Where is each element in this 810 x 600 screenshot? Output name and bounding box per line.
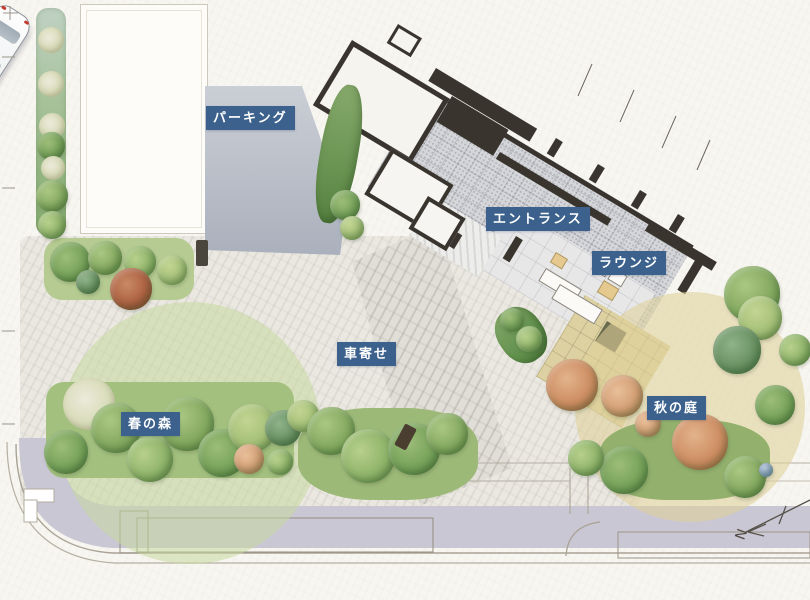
parking-post: [196, 240, 208, 266]
taillight: [1, 5, 7, 10]
column: [589, 164, 605, 184]
site-plan: N パーキング エントランス ラウンジ 車寄せ 春の森 秋の庭: [0, 0, 810, 600]
taillight: [24, 20, 30, 25]
shrub: [38, 211, 66, 239]
planter-outline: [618, 532, 810, 558]
car: [0, 0, 35, 107]
tree: [340, 216, 364, 240]
column: [669, 214, 685, 234]
north-label: N: [733, 527, 752, 542]
tree: [44, 430, 88, 474]
red-tree: [110, 268, 152, 310]
tree: [157, 255, 187, 285]
tree: [341, 429, 395, 483]
porte-cochere-label: 車寄せ: [337, 342, 396, 366]
car-windshield: [0, 47, 2, 81]
tree: [713, 326, 761, 374]
orange-tree: [234, 444, 264, 474]
tree: [127, 436, 173, 482]
lounge-label: ラウンジ: [592, 251, 666, 275]
tree: [755, 385, 795, 425]
shrub: [41, 156, 65, 180]
tree: [516, 326, 542, 352]
shrub: [38, 71, 64, 97]
orange-tree: [601, 375, 643, 417]
column: [631, 190, 647, 210]
tree: [600, 446, 648, 494]
orange-tree: [546, 359, 598, 411]
tree: [267, 449, 293, 475]
neighbor-building: [80, 4, 208, 234]
parking-label: パーキング: [206, 106, 295, 130]
building-porch: [387, 24, 422, 57]
tree: [76, 270, 100, 294]
shrub: [38, 27, 64, 53]
car-rear-window: [0, 17, 22, 45]
spring-forest-label: 春の森: [121, 412, 180, 436]
orange-tree: [672, 414, 728, 470]
entrance-label: エントランス: [486, 207, 590, 231]
autumn-garden-label: 秋の庭: [647, 396, 706, 420]
blue-flowers: [759, 463, 773, 477]
tree: [779, 334, 810, 366]
shrub: [36, 180, 68, 212]
tree: [568, 440, 604, 476]
facade-grid-lines: [578, 64, 710, 170]
column: [547, 138, 563, 158]
drive-entry-curb: [566, 522, 600, 556]
north-arrow: [746, 500, 810, 536]
tree: [426, 413, 468, 455]
tree: [724, 456, 766, 498]
